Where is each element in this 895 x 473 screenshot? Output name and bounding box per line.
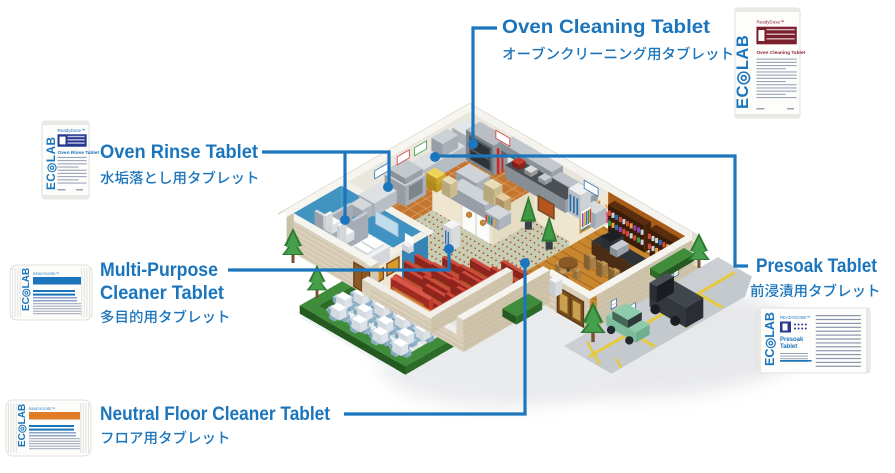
svg-text:ReadyDose™: ReadyDose™: [756, 19, 784, 24]
svg-text:READYDOSE™: READYDOSE™: [29, 407, 55, 411]
svg-text:READYDOSE™: READYDOSE™: [780, 315, 810, 320]
svg-text:Neutral Floor Cleaner Tablet: Neutral Floor Cleaner Tablet: [100, 404, 331, 425]
svg-text:Cleaner Tablet: Cleaner Tablet: [100, 283, 225, 304]
svg-text:Multi-Purpose: Multi-Purpose: [100, 260, 218, 281]
svg-text:Oven Cleaning Tablet: Oven Cleaning Tablet: [502, 17, 711, 38]
svg-text:EC◎LAB: EC◎LAB: [21, 268, 32, 311]
svg-text:Tablet: Tablet: [780, 344, 797, 350]
svg-text:Oven Cleaning Tablet: Oven Cleaning Tablet: [756, 50, 805, 56]
svg-text:Presoak Tablet: Presoak Tablet: [756, 256, 878, 277]
svg-text:ReadyDose™: ReadyDose™: [58, 128, 86, 133]
svg-text:Oven Rinse Tablet: Oven Rinse Tablet: [100, 142, 259, 163]
svg-text:EC◎LAB: EC◎LAB: [763, 312, 777, 366]
svg-text:EC◎LAB: EC◎LAB: [734, 35, 752, 109]
svg-text:Oven Rinse Tablet: Oven Rinse Tablet: [58, 150, 100, 156]
svg-text:READYDOSE™: READYDOSE™: [33, 272, 59, 276]
svg-text:EC◎LAB: EC◎LAB: [45, 137, 58, 190]
svg-text:Presoak: Presoak: [780, 337, 804, 343]
svg-text:EC◎LAB: EC◎LAB: [17, 404, 28, 447]
